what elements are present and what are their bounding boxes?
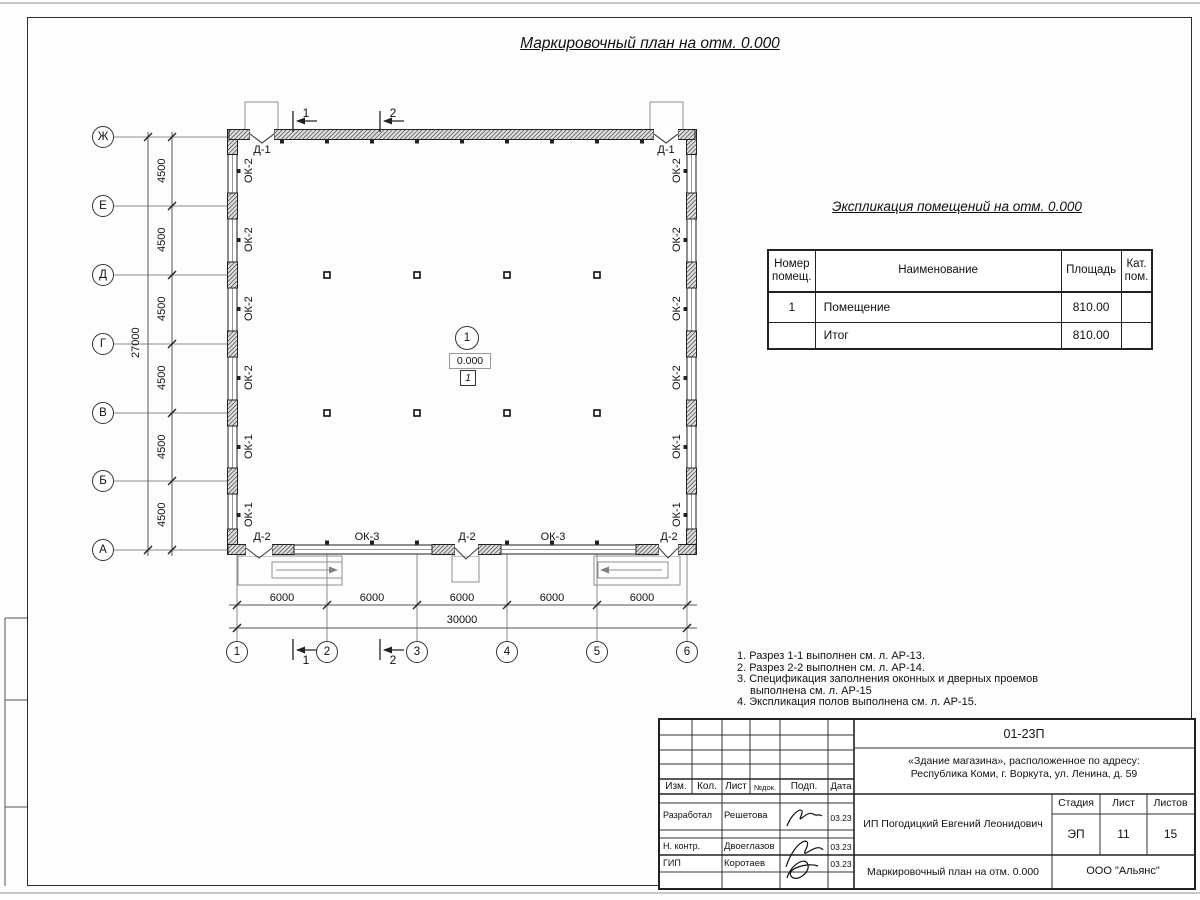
stamp-col-ndok: №док. xyxy=(750,783,780,792)
window-mark: ОК-2 xyxy=(241,218,257,262)
cell-room-area: 810.00 xyxy=(1061,292,1121,322)
axis-bubble-row: Ж xyxy=(92,126,114,148)
window-mark: ОК-2 xyxy=(669,287,685,331)
dim-total-30000: 30000 xyxy=(422,614,502,626)
sheets-label: Листов xyxy=(1147,797,1194,809)
explication-table: Номер помещ. Наименование Площадь Кат. п… xyxy=(767,249,1153,350)
door-mark: Д-2 xyxy=(240,531,284,543)
sheets-value: 15 xyxy=(1147,827,1194,841)
left-attachment-block xyxy=(5,618,27,886)
sheet-title: Маркировочный план на отм. 0.000 xyxy=(420,35,880,53)
cell-total-area: 810.00 xyxy=(1061,322,1121,349)
note-line: 4. Экспликация полов выполнена см. л. АР… xyxy=(737,697,1049,709)
dim-4500: 4500 xyxy=(154,287,170,331)
door-mark: Д-1 xyxy=(242,144,282,156)
object-address-line1: «Здание магазина», расположенное по адре… xyxy=(854,755,1194,767)
window-mark: ОК-1 xyxy=(241,425,257,469)
table-row: Итог 810.00 xyxy=(768,322,1152,349)
axis-bubble-col: 6 xyxy=(676,641,698,663)
cell-room-num: 1 xyxy=(768,292,815,322)
object-address-line2: Республика Коми, г. Воркута, ул. Ленина,… xyxy=(854,768,1194,780)
dim-4500: 4500 xyxy=(154,493,170,537)
stamp-date: 03.23 xyxy=(828,813,854,823)
stage-label: Стадия xyxy=(1052,797,1100,809)
axis-bubble-row: Д xyxy=(92,264,114,286)
floor-type-box: 1 xyxy=(460,370,476,386)
col-header-name: Наименование xyxy=(815,250,1061,292)
col-header-num: Номер помещ. xyxy=(768,250,815,292)
stamp-name: Решетова xyxy=(724,810,778,821)
org-name: ООО "Альянс" xyxy=(1052,865,1194,877)
sheet-label: Лист xyxy=(1100,797,1147,809)
note-line: 3. Спецификация заполнения оконных и две… xyxy=(737,674,1049,697)
title-block: Изм. Кол. Лист №док. Подп. Дата Разработ… xyxy=(658,718,1196,890)
dim-4500: 4500 xyxy=(154,218,170,262)
axis-bubble-row: В xyxy=(92,402,114,424)
dim-6000: 6000 xyxy=(432,592,492,604)
dim-4500: 4500 xyxy=(154,149,170,193)
window-mark: ОК-2 xyxy=(241,287,257,331)
note-line: 1. Разрез 1-1 выполнен см. л. АР-13. xyxy=(737,651,1049,663)
cell-room-cat xyxy=(1121,292,1152,322)
stamp-date: 03.23 xyxy=(828,859,854,869)
axis-bubble-row: Б xyxy=(92,470,114,492)
section-number: 1 xyxy=(297,653,315,667)
axis-bubble-row: Е xyxy=(92,195,114,217)
stamp-role: ГИП xyxy=(663,858,721,868)
stamp-col-data: Дата xyxy=(828,781,854,792)
doc-title: Маркировочный план на отм. 0.000 xyxy=(854,866,1052,878)
cell-total-name: Итог xyxy=(815,322,1061,349)
stamp-col-podp: Подп. xyxy=(780,781,828,792)
stamp-role: Н. контр. xyxy=(663,841,721,851)
client-name: ИП Погодицкий Евгений Леонидович xyxy=(854,818,1052,830)
dim-6000: 6000 xyxy=(522,592,582,604)
dim-4500: 4500 xyxy=(154,425,170,469)
window-mark: ОК-1 xyxy=(669,425,685,469)
window-mark: ОК-3 xyxy=(531,531,575,543)
stamp-name: Двоеглазов xyxy=(724,841,778,852)
sheet-value: 11 xyxy=(1100,827,1147,841)
window-mark: ОК-2 xyxy=(669,218,685,262)
window-mark: ОК-2 xyxy=(241,356,257,400)
axis-bubble-col: 1 xyxy=(226,641,248,663)
room-level-box: 0.000 xyxy=(449,353,491,369)
door-mark: Д-2 xyxy=(445,531,489,543)
dim-6000: 6000 xyxy=(612,592,672,604)
axis-bubble-row: Г xyxy=(92,333,114,355)
signature-dvoeglazov-korotaev xyxy=(786,841,823,878)
axis-bubble-col: 5 xyxy=(586,641,608,663)
dim-4500: 4500 xyxy=(154,356,170,400)
explication-title: Экспликация помещений на отм. 0.000 xyxy=(747,199,1167,214)
door-mark: Д-2 xyxy=(647,531,691,543)
drawing-sheet: { "sheet": { "main_title": "Маркировочны… xyxy=(0,0,1200,900)
cell-total-num xyxy=(768,322,815,349)
doc-code: 01-23П xyxy=(854,727,1194,741)
stage-value: ЭП xyxy=(1052,827,1100,841)
room-number-bubble: 1 xyxy=(455,326,479,350)
section-number: 1 xyxy=(297,106,315,120)
dim-6000: 6000 xyxy=(342,592,402,604)
axis-bubble-col: 3 xyxy=(406,641,428,663)
stamp-name: Коротаев xyxy=(724,858,778,869)
table-row: 1 Помещение 810.00 xyxy=(768,292,1152,322)
window-mark: ОК-2 xyxy=(669,356,685,400)
window-mark: ОК-3 xyxy=(345,531,389,543)
door-mark: Д-1 xyxy=(646,144,686,156)
stamp-date: 03.23 xyxy=(828,842,854,852)
stamp-col-kol: Кол. xyxy=(692,781,722,792)
section-number: 2 xyxy=(384,653,402,667)
stamp-role: Разработал xyxy=(663,810,721,820)
axis-bubble-row: А xyxy=(92,539,114,561)
dim-total-27000: 27000 xyxy=(128,313,144,373)
stamp-col-list: Лист xyxy=(722,781,750,792)
axis-bubble-col: 4 xyxy=(496,641,518,663)
col-header-area: Площадь xyxy=(1061,250,1121,292)
stamp-col-izm: Изм. xyxy=(660,781,692,792)
axis-bubble-col: 2 xyxy=(316,641,338,663)
dim-6000: 6000 xyxy=(252,592,312,604)
section-number: 2 xyxy=(384,106,402,120)
signature-reshetova xyxy=(787,810,822,826)
cell-room-name: Помещение xyxy=(815,292,1061,322)
col-header-cat: Кат. пом. xyxy=(1121,250,1152,292)
notes-block: 1. Разрез 1-1 выполнен см. л. АР-13. 2. … xyxy=(737,651,1049,709)
cell-total-cat xyxy=(1121,322,1152,349)
